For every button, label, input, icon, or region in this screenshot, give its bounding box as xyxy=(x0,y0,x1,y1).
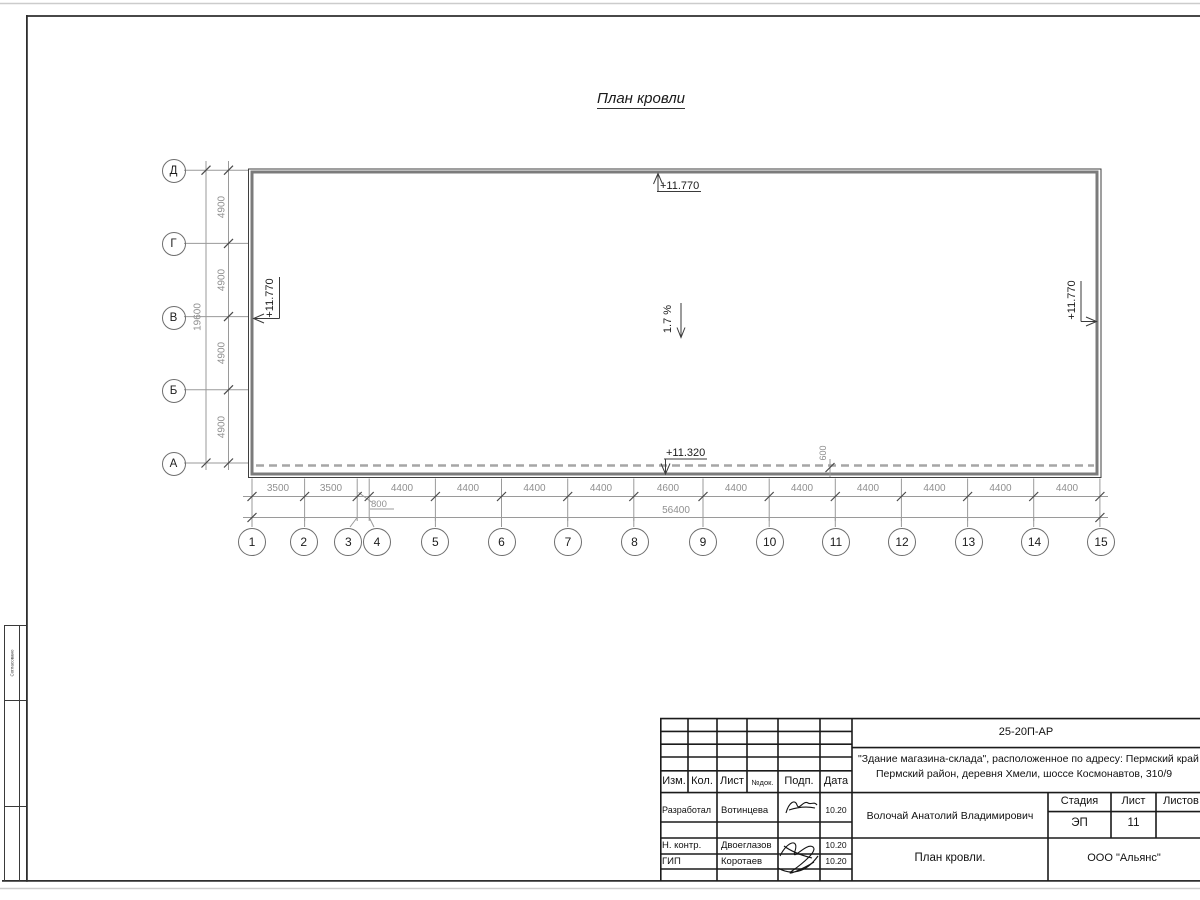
axis-bubble-row: Б xyxy=(162,379,186,403)
doc-number: 25-20П-АР xyxy=(999,726,1053,738)
axis-bubble-col: 5 xyxy=(421,528,449,556)
drawing-sheet: План кровли +11.770 +11.320 +11.770 +11.… xyxy=(0,0,1200,900)
tb-chief-name: Волочай Анатолий Владимирович xyxy=(867,810,1034,822)
tb-name-gip: Коротаев xyxy=(721,856,762,867)
tb-header-izm: Изм. xyxy=(662,775,686,787)
axis-bubble-col: 10 xyxy=(756,528,784,556)
axis-bubble-col: 15 xyxy=(1087,528,1115,556)
axis-label: 3 xyxy=(345,535,352,549)
axis-label: 8 xyxy=(631,535,638,549)
axis-label: 10 xyxy=(763,535,776,549)
tb-header-list: Лист xyxy=(720,775,744,787)
dim-row-total: 19600 xyxy=(192,303,203,331)
axis-bubble-row: Д xyxy=(162,159,186,183)
page-title: План кровли xyxy=(597,90,685,109)
tb-date-developer: 10.20 xyxy=(825,805,846,815)
drawing-linework xyxy=(0,0,1200,900)
tb-sheet-value: 11 xyxy=(1128,817,1140,829)
axis-bubble-col: 1 xyxy=(238,528,266,556)
axis-label: В xyxy=(170,312,178,324)
tb-stage-value: ЭП xyxy=(1071,817,1088,829)
axis-label: 5 xyxy=(432,535,439,549)
axis-label: Б xyxy=(170,385,178,397)
dim-row-span: 4900 xyxy=(216,416,227,438)
tb-company: ООО "Альянс" xyxy=(1087,852,1161,864)
axis-bubble-col: 8 xyxy=(621,528,649,556)
dim-col-span: 4400 xyxy=(457,483,479,494)
tb-stage-label: Стадия xyxy=(1061,795,1099,807)
dim-col-span: 4400 xyxy=(523,483,545,494)
project-address-line2: Пермский район, деревня Хмели, шоссе Кос… xyxy=(876,768,1172,780)
dim-col-total: 56400 xyxy=(662,505,690,516)
dim-edge-offset: 600 xyxy=(818,445,828,460)
axis-bubble-col: 13 xyxy=(955,528,983,556)
dim-col-span: 4400 xyxy=(590,483,612,494)
dim-col-span: 4400 xyxy=(391,483,413,494)
axis-label: 4 xyxy=(374,535,381,549)
axis-label: Г xyxy=(170,238,176,250)
axis-label: 2 xyxy=(300,535,307,549)
axis-label: 13 xyxy=(962,535,975,549)
axis-label: 15 xyxy=(1094,535,1107,549)
axis-label: 12 xyxy=(895,535,908,549)
dim-col-span: 4400 xyxy=(923,483,945,494)
axis-bubble-col: 2 xyxy=(290,528,318,556)
axis-bubble-row: Г xyxy=(162,232,186,256)
axis-label: 6 xyxy=(498,535,505,549)
axis-label: 9 xyxy=(700,535,707,549)
dim-col-span-800: 800 xyxy=(371,499,387,510)
axis-label: 14 xyxy=(1028,535,1041,549)
dim-col-span: 4400 xyxy=(725,483,747,494)
elevation-left: +11.770 xyxy=(264,278,276,317)
tb-role-developer: Разработал xyxy=(662,805,711,815)
tb-role-ncontrol: Н. контр. xyxy=(662,840,701,851)
dim-col-span: 4400 xyxy=(989,483,1011,494)
axis-bubble-col: 12 xyxy=(888,528,916,556)
tb-header-data: Дата xyxy=(824,775,848,787)
dim-row-span: 4900 xyxy=(216,269,227,291)
dim-row-span: 4900 xyxy=(216,196,227,218)
tb-sheets-label: Листов xyxy=(1163,795,1199,807)
dim-col-span: 4400 xyxy=(791,483,813,494)
axis-bubble-col: 6 xyxy=(488,528,516,556)
dim-col-span: 4400 xyxy=(857,483,879,494)
axis-label: А xyxy=(170,458,178,470)
tb-sheet-title: План кровли. xyxy=(915,852,986,864)
elevation-eave: +11.320 xyxy=(666,447,705,459)
axis-bubble-col: 14 xyxy=(1021,528,1049,556)
axis-bubble-col: 11 xyxy=(822,528,850,556)
tb-header-kol: Кол. xyxy=(691,775,713,787)
axis-bubble-col: 9 xyxy=(689,528,717,556)
axis-bubble-row: В xyxy=(162,306,186,330)
dim-row-span: 4900 xyxy=(216,342,227,364)
dim-col-span: 3500 xyxy=(320,483,342,494)
tb-date-ncontrol: 10.20 xyxy=(825,840,846,850)
axis-label: 1 xyxy=(249,535,256,549)
tb-date-gip: 10.20 xyxy=(825,856,846,866)
dim-col-span: 4600 xyxy=(657,483,679,494)
axis-bubble-col: 4 xyxy=(363,528,391,556)
axis-bubble-col: 3 xyxy=(334,528,362,556)
project-address-line1: "Здание магазина-склада", расположенное … xyxy=(858,753,1199,765)
side-stamp-label: Согласовано xyxy=(9,649,14,676)
axis-bubble-col: 7 xyxy=(554,528,582,556)
elevation-top: +11.770 xyxy=(660,180,699,192)
elevation-right: +11.770 xyxy=(1066,280,1078,319)
axis-label: Д xyxy=(170,165,178,177)
axis-label: 11 xyxy=(830,535,842,549)
axis-bubble-row: А xyxy=(162,452,186,476)
tb-sheet-label: Лист xyxy=(1122,795,1146,807)
tb-header-ndok: №док. xyxy=(752,778,774,787)
tb-name-developer: Вотинцева xyxy=(721,805,768,816)
tb-name-ncontrol: Двоеглазов xyxy=(721,840,772,851)
axis-label: 7 xyxy=(565,535,572,549)
slope-annotation: 1.7 % xyxy=(662,305,674,333)
tb-role-gip: ГИП xyxy=(662,856,681,867)
dim-col-span: 4400 xyxy=(1056,483,1078,494)
tb-header-podp: Подп. xyxy=(784,775,813,787)
dim-col-span: 3500 xyxy=(267,483,289,494)
